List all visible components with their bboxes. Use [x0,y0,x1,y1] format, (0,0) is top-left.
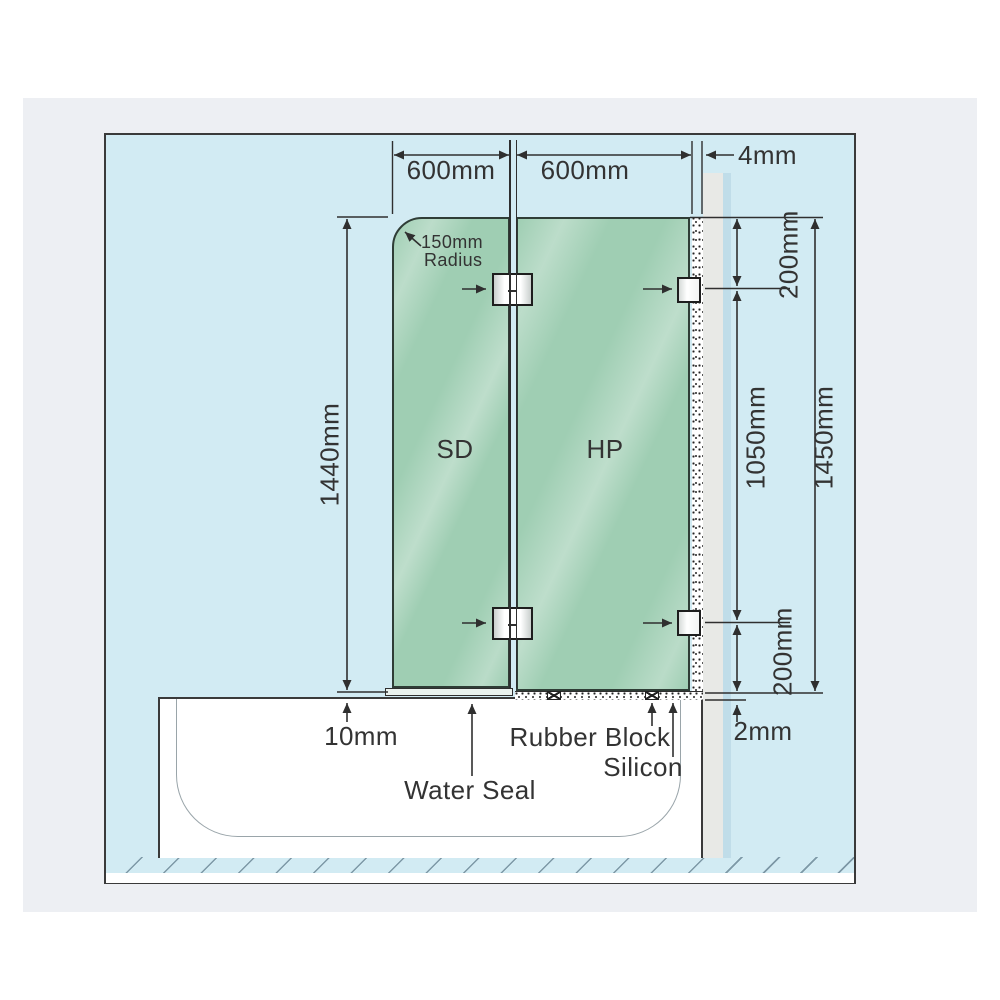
silicon-bead-bottom [515,691,703,700]
dim-label-hinge-bottom-offset: 200mm [769,592,796,712]
water-seal-strip [385,688,513,696]
wall-bracket-bottom [677,610,701,636]
wall-bracket-top [677,277,701,303]
panel-label-hp: HP [565,436,645,463]
panel-gap-line-left [509,140,511,688]
dim-label-hp-width: 600mm [517,157,653,184]
annotation-silicon: Silicon [543,754,743,781]
diagram-page: 600mm 600mm 4mm 150mm Radius SD HP 1440m… [0,0,1000,1000]
radius-label-word: Radius [424,251,482,270]
floor-hatch [106,857,854,874]
dim-label-wall-gap: 4mm [738,142,797,169]
frame-bottom-strip [106,873,854,883]
dim-label-hp-bottom-gap: 2mm [713,718,813,745]
panel-gap-line-right [516,140,518,688]
annotation-water-seal: Water Seal [370,777,570,804]
hinge-top-notch [508,290,517,292]
hinge-bottom-notch [508,624,517,626]
dim-label-hinge-top-offset: 200mm [775,195,802,315]
dim-label-sd-width: 600mm [393,157,509,184]
dim-label-hinge-spacing: 1050mm [742,363,769,513]
dim-label-hp-height: 1450mm [810,363,837,513]
dim-label-bottom-gap: 10mm [311,723,411,750]
rubber-block-left [547,691,561,700]
dim-label-sd-height: 1440mm [316,395,343,515]
annotation-rubber-block: Rubber Block [490,724,690,751]
panel-label-sd: SD [415,436,495,463]
rubber-block-right [645,691,659,700]
